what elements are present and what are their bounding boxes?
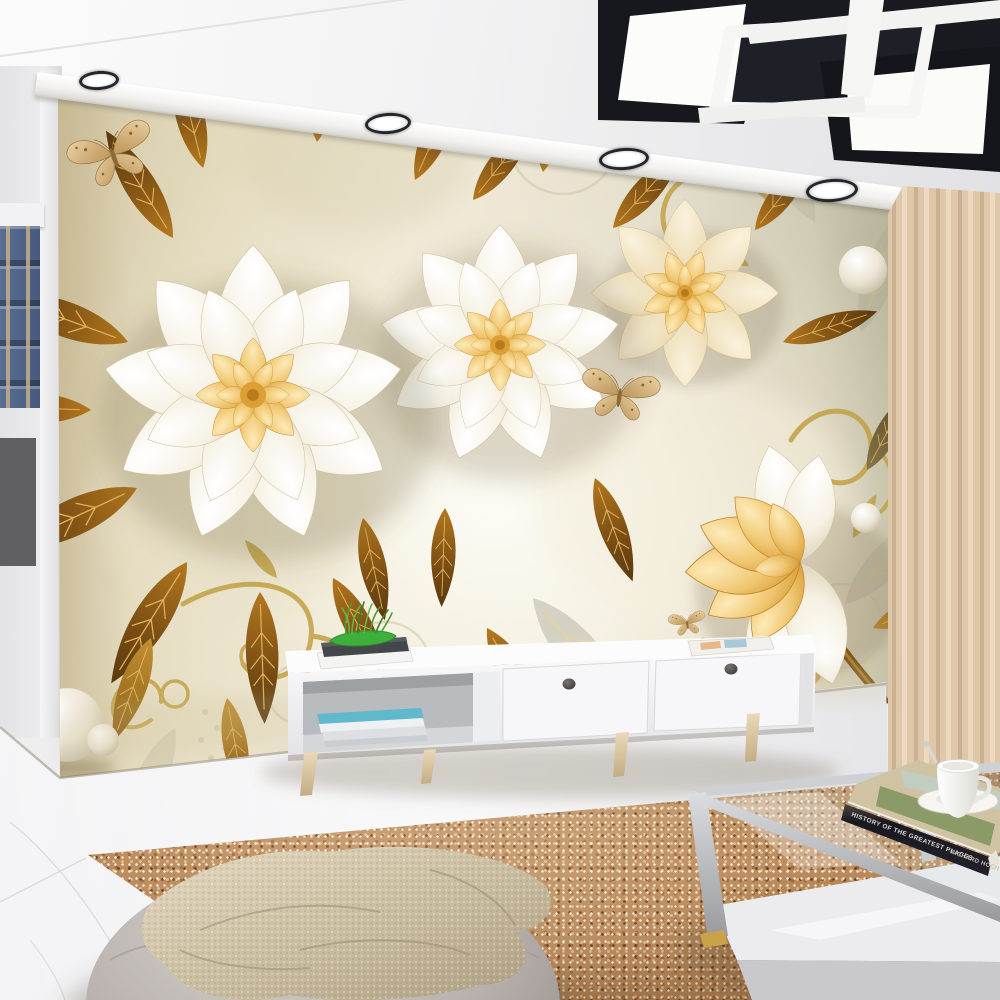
blanket bbox=[142, 847, 551, 1000]
drawer-knob bbox=[725, 664, 738, 675]
living-room-scene: HISTORY OF THE GREATEST PLACES RICHARD H… bbox=[0, 0, 1000, 1000]
shelf-magazines bbox=[317, 708, 428, 747]
drawer-knob bbox=[563, 679, 576, 690]
tv-stand bbox=[260, 602, 840, 798]
grass-plant bbox=[330, 602, 396, 646]
furniture-layer: HISTORY OF THE GREATEST PLACES RICHARD H… bbox=[0, 0, 1000, 1000]
spoon bbox=[927, 745, 936, 762]
table-leg bbox=[688, 792, 728, 940]
tv-stand-drawer-left bbox=[503, 661, 649, 741]
